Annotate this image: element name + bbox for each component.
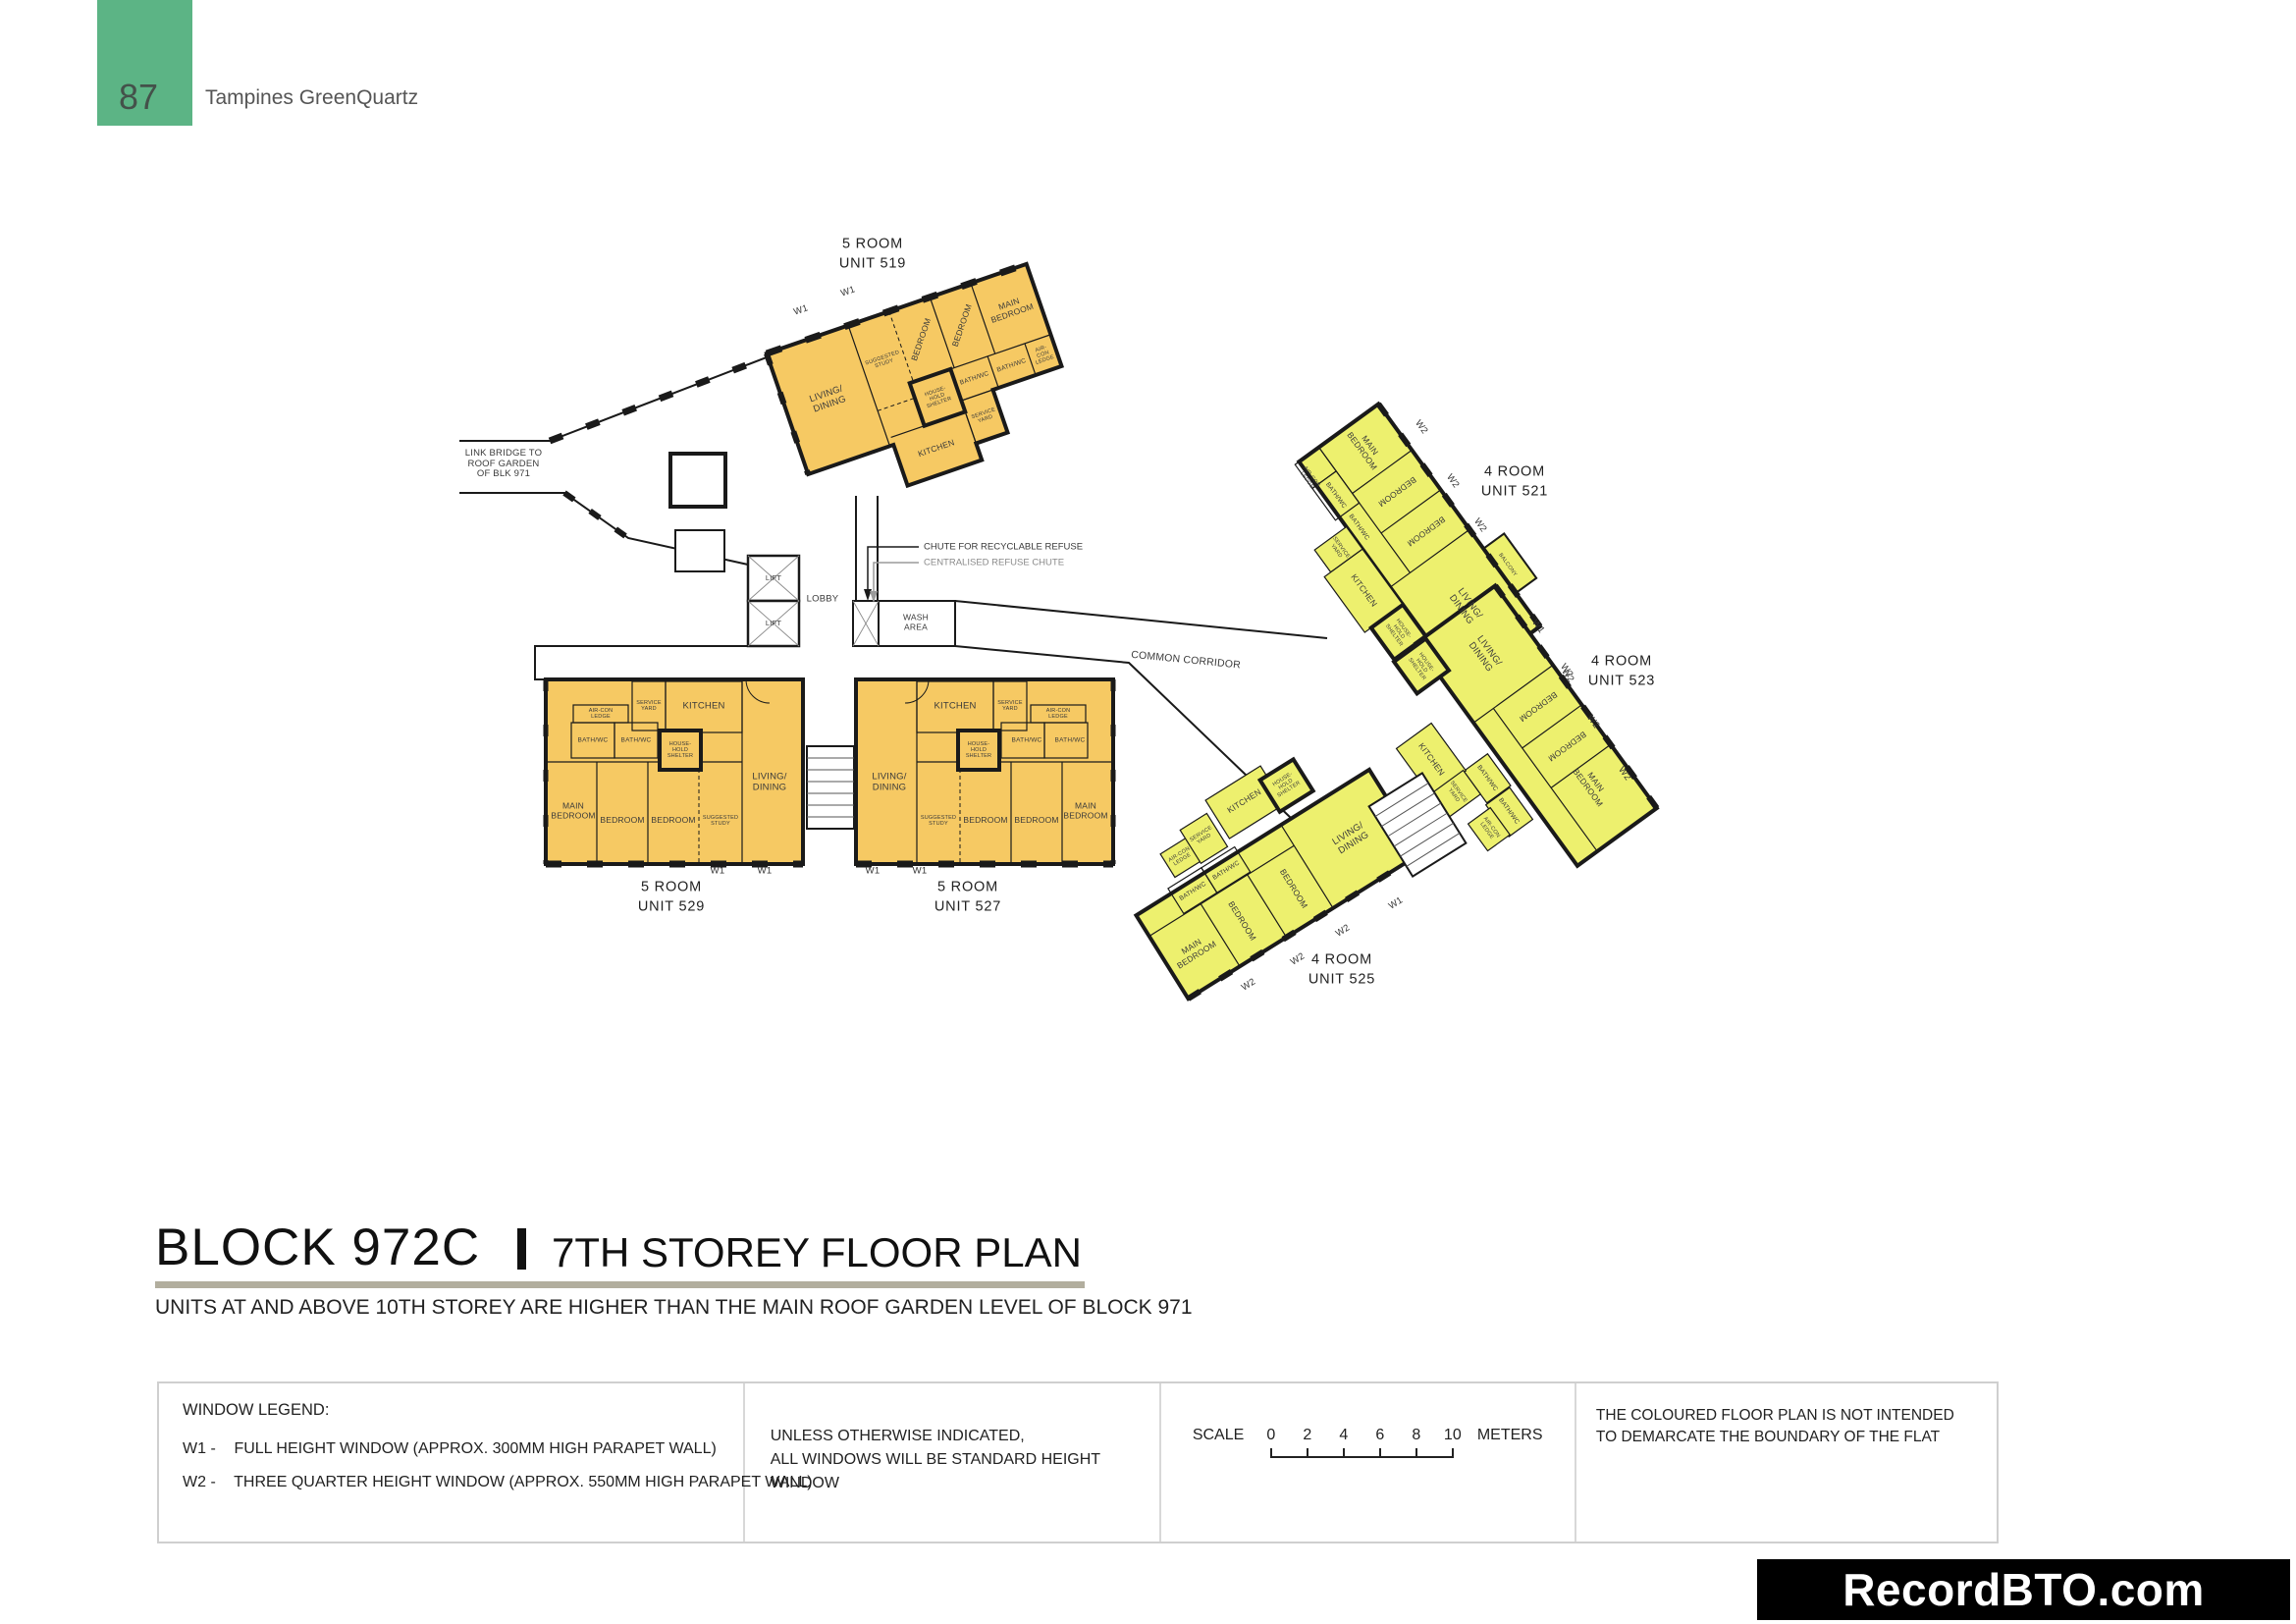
unit-number: UNIT 529 — [638, 897, 705, 917]
unit-number: UNIT 519 — [839, 254, 906, 274]
unit-number: UNIT 521 — [1481, 482, 1548, 502]
scale-tick-label: 4 — [1339, 1427, 1348, 1444]
unit-type: 4 ROOM — [1481, 462, 1548, 482]
room-label-service: SERVICE YARD — [636, 700, 661, 712]
unit-529-rooms: AIR-CON LEDGE SERVICE YARD KITCHEN LIVIN… — [546, 679, 803, 864]
window-code: W1 - — [183, 1440, 230, 1458]
watermark-banner: RecordBTO.com — [1757, 1559, 2290, 1620]
room-label-bedroom: BEDROOM — [1277, 868, 1308, 910]
scale-tick-label: 0 — [1266, 1427, 1275, 1444]
unit-number: UNIT 527 — [934, 897, 1001, 917]
window-legend-title: WINDOW LEGEND: — [183, 1401, 329, 1420]
unit-519-label: 5 ROOM UNIT 519 — [839, 235, 906, 273]
chute-leader-lines — [864, 547, 919, 603]
room-label-study: SUGGESTED STUDY — [921, 815, 956, 827]
unit-number: UNIT 523 — [1588, 672, 1655, 691]
room-label-bath: BATH/WC — [1211, 859, 1241, 882]
scale-bar: SCALE 0 2 4 6 8 10 METERS — [1161, 1383, 1575, 1542]
room-label-aircon: AIR-CON LEDGE — [1297, 465, 1320, 492]
room-label-shelter: HOUSE- HOLD SHELTER — [923, 385, 953, 410]
unit-521-label: 4 ROOM UNIT 521 — [1481, 462, 1548, 501]
room-label-bedroom: BEDROOM — [951, 303, 975, 349]
scale-tick — [1343, 1448, 1345, 1458]
window-code: W2 - — [183, 1474, 230, 1491]
storey-title: 7TH STOREY FLOOR PLAN — [552, 1229, 1082, 1276]
scale-tick — [1270, 1448, 1272, 1458]
room-label-aircon: AIR-CON LEDGE — [1031, 343, 1055, 366]
lift-core — [748, 556, 955, 646]
room-label-living: LIVING/ DINING — [809, 384, 848, 415]
scale-tick — [1415, 1448, 1417, 1458]
scale-tick-label: 10 — [1444, 1427, 1462, 1444]
room-label-kitchen: KITCHEN — [682, 702, 724, 713]
unit-525-label: 4 ROOM UNIT 525 — [1308, 950, 1375, 989]
watermark-text: RecordBTO.com — [1842, 1563, 2205, 1616]
unit-type: 4 ROOM — [1308, 950, 1375, 970]
title-rule — [155, 1281, 1085, 1288]
lift-label: LIFT — [766, 620, 781, 627]
room-label-shelter: HOUSE- HOLD SHELTER — [1407, 650, 1436, 681]
service-room — [675, 530, 724, 571]
unit-type: 5 ROOM — [839, 235, 906, 254]
room-label-main-bedroom: MAIN BEDROOM — [1170, 931, 1218, 970]
room-label-living: LIVING/ DINING — [872, 772, 906, 792]
window-wall — [564, 493, 628, 538]
room-label-living: LIVING/ DINING — [1466, 634, 1503, 675]
room-label-bath: BATH/WC — [1012, 736, 1042, 743]
scale-ruler — [1271, 1456, 1454, 1458]
room-label-aircon: AIR-CON LEDGE — [1046, 708, 1071, 720]
room-label-bath: BATH/WC — [996, 357, 1028, 374]
scale-unit: METERS — [1477, 1427, 1543, 1444]
wash-area-label: WASH AREA — [903, 613, 929, 631]
boundary-note: THE COLOURED FLOOR PLAN IS NOT INTENDED … — [1596, 1405, 1954, 1449]
storey-note: UNITS AT AND ABOVE 10TH STOREY ARE HIGHE… — [155, 1296, 1193, 1320]
room-label-bedroom: BEDROOM — [1518, 689, 1559, 723]
room-label-kitchen: KITCHEN — [917, 438, 956, 460]
room-label-main-bedroom: MAIN BEDROOM — [1063, 801, 1107, 820]
scale-tick-label: 8 — [1412, 1427, 1420, 1444]
room-label-kitchen: KITCHEN — [934, 702, 976, 713]
boundary-note-box: THE COLOURED FLOOR PLAN IS NOT INTENDED … — [1576, 1383, 1997, 1542]
window-label: W1 — [711, 866, 725, 877]
room-label-main-bedroom: MAIN BEDROOM — [1345, 425, 1386, 472]
room-label-bedroom: BEDROOM — [1405, 514, 1446, 548]
room-label-bath: BATH/WC — [1178, 881, 1207, 903]
windows-note-box: UNLESS OTHERWISE INDICATED, ALL WINDOWS … — [745, 1383, 1161, 1542]
room-label-service: SERVICE YARD — [971, 406, 998, 426]
room-label-bath: BATH/WC — [1347, 514, 1370, 542]
scale-tick-label: 6 — [1375, 1427, 1384, 1444]
title-separator — [517, 1228, 526, 1270]
room-label-bedroom: BEDROOM — [1376, 474, 1417, 508]
window-label: W1 — [866, 866, 881, 877]
brochure-page: 87 Tampines GreenQuartz — [0, 0, 2296, 1624]
room-label-living: LIVING/ DINING — [752, 772, 786, 792]
unit-type: 5 ROOM — [934, 878, 1001, 897]
room-label-bedroom: BEDROOM — [1226, 900, 1257, 943]
room-label-kitchen: KITCHEN — [1349, 572, 1378, 609]
room-label-bedroom: BEDROOM — [1014, 816, 1058, 826]
unit-527-rooms: KITCHEN SERVICE YARD AIR-CON LEDGE LIVIN… — [856, 679, 1113, 864]
window-label: W1 — [758, 866, 773, 877]
scale-tick-label: 2 — [1303, 1427, 1311, 1444]
room-label-bath: BATH/WC — [959, 370, 990, 387]
chute-centralised-label: CENTRALISED REFUSE CHUTE — [924, 557, 1064, 568]
scale-tick — [1452, 1448, 1454, 1458]
service-room — [670, 454, 725, 507]
room-label-bath: BATH/WC — [1475, 764, 1499, 792]
room-label-bedroom: BEDROOM — [1546, 730, 1587, 763]
room-label-study: SUGGESTED STUDY — [865, 350, 902, 372]
room-label-main-bedroom: MAIN BEDROOM — [987, 293, 1035, 325]
chute-recyclable-label: CHUTE FOR RECYCLABLE REFUSE — [924, 541, 1083, 552]
scale-tick — [1307, 1448, 1308, 1458]
room-label-bedroom: BEDROOM — [963, 816, 1007, 826]
window-legend-box: WINDOW LEGEND: W1 - FULL HEIGHT WINDOW (… — [159, 1383, 745, 1542]
lift-label: LIFT — [766, 574, 781, 582]
room-label-aircon: AIR-CON LEDGE — [589, 708, 614, 720]
window-desc: FULL HEIGHT WINDOW (APPROX. 300MM HIGH P… — [234, 1440, 716, 1457]
room-label-main-bedroom: MAIN BEDROOM — [1571, 762, 1612, 809]
room-label-bedroom: BEDROOM — [651, 816, 695, 826]
unit-527-label: 5 ROOM UNIT 527 — [934, 878, 1001, 916]
unit-number: UNIT 525 — [1308, 970, 1375, 990]
room-label-shelter: HOUSE- HOLD SHELTER — [1384, 617, 1414, 648]
room-label-living: LIVING/ DINING — [1331, 821, 1371, 857]
floor-plan-drawing — [0, 0, 2296, 1624]
legend-bar: WINDOW LEGEND: W1 - FULL HEIGHT WINDOW (… — [157, 1381, 1999, 1543]
room-label-service: SERVICE YARD — [1326, 536, 1351, 564]
staircase — [807, 746, 854, 829]
room-label-bedroom: BEDROOM — [910, 317, 934, 362]
room-label-bath: BATH/WC — [578, 736, 609, 743]
unit-type: 5 ROOM — [638, 878, 705, 897]
windows-note: UNLESS OTHERWISE INDICATED, ALL WINDOWS … — [771, 1425, 1159, 1495]
room-label-shelter: HOUSE- HOLD SHELTER — [667, 741, 693, 759]
scale-box: SCALE 0 2 4 6 8 10 METERS — [1161, 1383, 1576, 1542]
room-label-bedroom: BEDROOM — [600, 816, 644, 826]
room-label-bath: BATH/WC — [621, 736, 652, 743]
room-label-bath: BATH/WC — [1497, 797, 1521, 826]
room-label-service: SERVICE YARD — [997, 700, 1022, 712]
window-label: W1 — [913, 866, 928, 877]
scale-tick — [1379, 1448, 1381, 1458]
unit-529-label: 5 ROOM UNIT 529 — [638, 878, 705, 916]
link-bridge-label: LINK BRIDGE TO ROOF GARDEN OF BLK 971 — [465, 449, 542, 480]
room-label-bath: BATH/WC — [1055, 736, 1086, 743]
room-label-main-bedroom: MAIN BEDROOM — [551, 801, 595, 820]
window-legend-row: W1 - FULL HEIGHT WINDOW (APPROX. 300MM H… — [183, 1440, 717, 1458]
unit-523-label: 4 ROOM UNIT 523 — [1588, 652, 1655, 690]
window-desc: THREE QUARTER HEIGHT WINDOW (APPROX. 550… — [234, 1474, 812, 1490]
room-label-shelter: HOUSE- HOLD SHELTER — [966, 741, 991, 759]
window-legend-row: W2 - THREE QUARTER HEIGHT WINDOW (APPROX… — [183, 1474, 813, 1491]
scale-label: SCALE — [1193, 1427, 1244, 1444]
room-label-bath: BATH/WC — [1324, 481, 1348, 510]
room-label-study: SUGGESTED STUDY — [703, 815, 738, 827]
unit-type: 4 ROOM — [1588, 652, 1655, 672]
lobby-label: LOBBY — [807, 595, 839, 606]
block-title: BLOCK 972C — [155, 1218, 480, 1277]
